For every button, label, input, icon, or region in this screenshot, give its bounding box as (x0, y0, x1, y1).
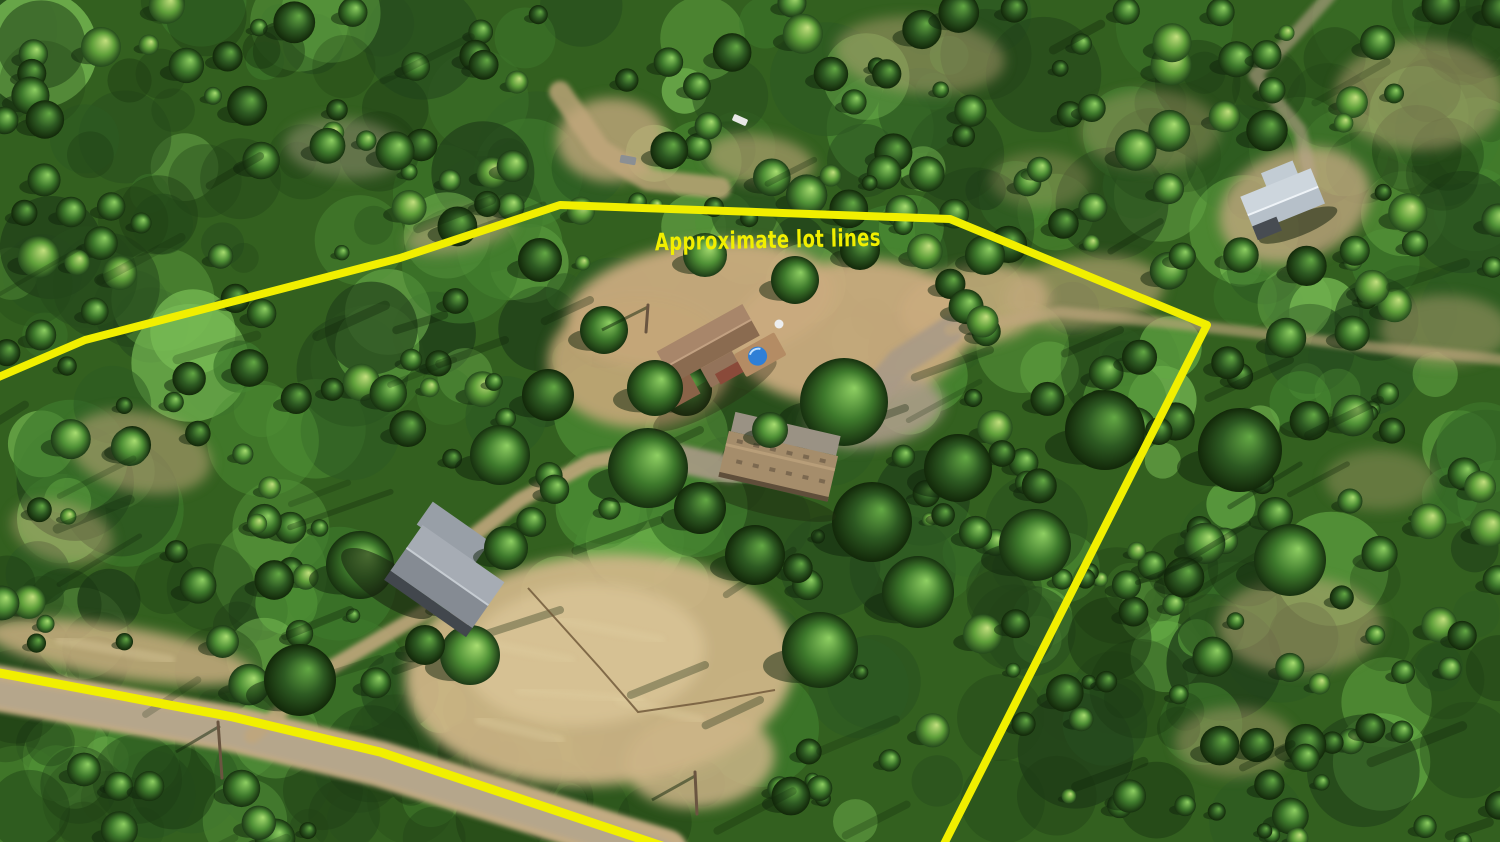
aerial-photo: Approximate lot lines (0, 0, 1500, 842)
satellite-dish (775, 320, 784, 329)
scene-canvas: Approximate lot lines (0, 0, 1500, 842)
lot-lines-label: Approximate lot lines (655, 224, 882, 257)
utility-pole (646, 305, 648, 332)
utility-pole (695, 772, 697, 814)
